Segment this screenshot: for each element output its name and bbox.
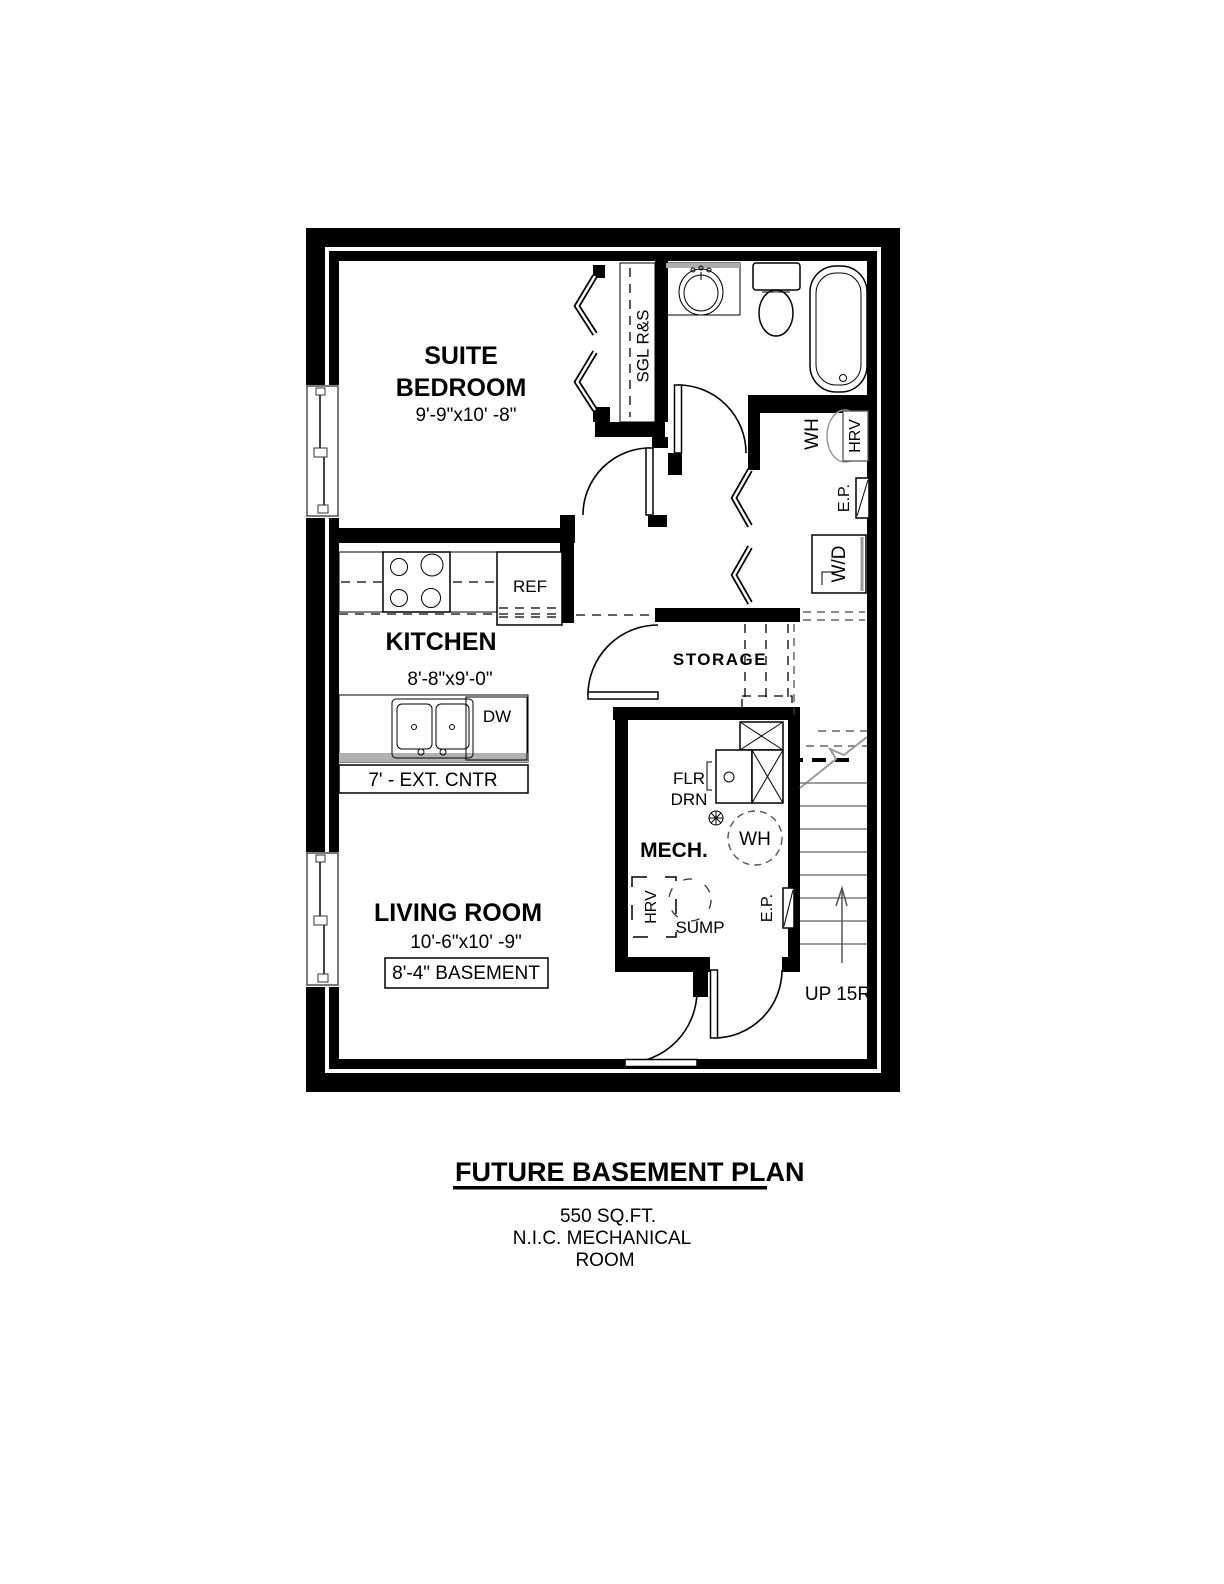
living-hall-door <box>625 991 697 1067</box>
floor-drain-label-line2: DRN <box>671 790 708 809</box>
sump: SUMP <box>669 879 725 937</box>
washer-dryer-label: W/D <box>829 546 850 583</box>
bedroom-door <box>583 448 653 515</box>
bedroom-dimensions: 9'-9"x10' -8" <box>415 405 516 426</box>
furnace <box>707 722 783 803</box>
counter-label-box: 7' - EXT. CNTR <box>339 765 528 793</box>
electrical-panel-upper-label: E.P. <box>836 484 853 512</box>
nic-note-line1: N.I.C. MECHANICAL <box>513 1228 691 1249</box>
floor-plan: SUITE BEDROOM 9'-9"x10' -8" SGL R&S <box>0 0 1224 1584</box>
water-heater-mech-label: WH <box>739 829 771 850</box>
kitchen: REF KITCHEN 8'-8"x9'-0" DW 7' - EXT. CNT… <box>339 552 653 793</box>
bedroom-label-line1: SUITE <box>424 342 498 370</box>
floor-drain-label-line1: FLR <box>673 769 705 788</box>
closet: SGL R&S <box>577 263 655 422</box>
living-room-label: LIVING ROOM <box>374 899 542 927</box>
storage: STORAGE <box>588 624 792 708</box>
drawing-title: FUTURE BASEMENT PLAN <box>455 1157 805 1187</box>
mech-room: FLR DRN WH MECH. HRV SUMP E.P. <box>632 722 794 1038</box>
electrical-panel-upper: E.P. <box>836 478 869 518</box>
water-heater-mech: WH <box>728 811 782 865</box>
basement-height-label: 8'-4" BASEMENT <box>392 963 540 984</box>
water-heater-upper-label: WH <box>802 418 823 450</box>
hrv-mech-label: HRV <box>643 890 660 924</box>
drawing-sheet: SUITE BEDROOM 9'-9"x10' -8" SGL R&S <box>0 0 1224 1584</box>
kitchen-sink-counter: DW <box>339 695 528 762</box>
stairs-label: UP 15R <box>805 984 871 1005</box>
window-bedroom <box>300 385 341 518</box>
stair-direction-arrow <box>836 888 847 963</box>
closet-rod-label: SGL R&S <box>633 309 652 382</box>
window-living-room <box>300 852 341 987</box>
room-suite-bedroom: SUITE BEDROOM 9'-9"x10' -8" <box>396 342 527 426</box>
nic-note-line2: ROOM <box>575 1250 634 1271</box>
area-label: 550 SQ.FT. <box>560 1206 656 1227</box>
bathroom-door <box>675 385 747 453</box>
title-block: FUTURE BASEMENT PLAN 550 SQ.FT. N.I.C. M… <box>453 1157 805 1271</box>
floor-drain-symbol <box>709 811 723 825</box>
sump-label: SUMP <box>675 918 724 937</box>
washer-dryer: W/D <box>812 535 866 593</box>
electrical-panel-mech-label: E.P. <box>759 894 776 922</box>
toilet <box>753 263 800 336</box>
kitchen-label: KITCHEN <box>385 628 496 656</box>
stair-treads <box>800 783 867 944</box>
basement-height-box: 8'-4" BASEMENT <box>385 958 548 988</box>
stair-break-line <box>800 737 867 788</box>
mech-room-label: MECH. <box>640 839 708 862</box>
living-room-dimensions: 10'-6"x10' -9" <box>410 932 522 953</box>
laundry-bifold-doors <box>734 470 750 603</box>
bathtub <box>810 266 867 392</box>
counter-label: 7' - EXT. CNTR <box>368 770 497 791</box>
hrv-upper-label: HRV <box>847 419 864 453</box>
bathroom <box>666 263 867 453</box>
stairs: UP 15R <box>789 612 871 1005</box>
stove <box>383 552 450 612</box>
storage-door <box>588 625 658 699</box>
kitchen-dimensions: 8'-8"x9'-0" <box>407 669 492 690</box>
title-underline <box>453 1186 767 1190</box>
dishwasher-label: DW <box>483 707 511 726</box>
electrical-panel-mech: E.P. <box>759 888 794 928</box>
fridge-label: REF <box>513 577 547 596</box>
bedroom-label-line2: BEDROOM <box>396 374 527 402</box>
storage-label: STORAGE <box>673 650 767 669</box>
bathroom-sink <box>666 263 740 315</box>
mech-door <box>711 970 783 1038</box>
hrv-mech: HRV <box>632 877 676 937</box>
